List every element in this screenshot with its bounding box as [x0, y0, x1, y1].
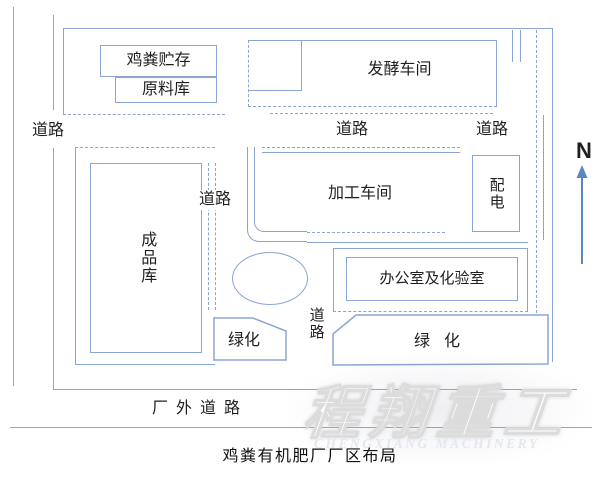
- outside-road-label: 厂外道路: [134, 398, 258, 420]
- north-label: N: [570, 138, 598, 164]
- road-label-middle-left: 道路: [193, 190, 237, 210]
- mid-road-line-b: [215, 163, 216, 310]
- power-distribution-label: 配电: [481, 168, 511, 220]
- right-road-inner-line-b: [543, 115, 544, 240]
- road-line-under-fermentation: [270, 113, 493, 114]
- north-arrow-icon: [572, 164, 592, 266]
- right-road-inner-line: [536, 30, 537, 313]
- fermentation-annex-outline: [248, 40, 302, 91]
- road-line-below-processing-a: [307, 232, 445, 233]
- green-right-label: 绿化: [380, 332, 494, 352]
- road-label-middle-top: 道路: [330, 120, 374, 140]
- road-line-below-processing-b: [307, 242, 528, 243]
- mid-road-line-a: [208, 163, 209, 310]
- manure-storage-label: 鸡粪贮存: [100, 46, 217, 76]
- fermentation-label: 发酵车间: [302, 60, 497, 80]
- diagram-title: 鸡粪有机肥厂厂区布局: [140, 446, 480, 468]
- left-road-inner-line-bottom: [53, 148, 54, 389]
- road-corner-inner: [254, 147, 307, 232]
- left-road-outer-line: [13, 7, 14, 386]
- top-right-road-stub-b: [520, 30, 521, 62]
- site-plan-diagram: 鸡粪贮存 原料库 发酵车间 道路 道路 道路 加工车间 配电 成品库 道路 道路…: [0, 0, 600, 479]
- finished-store-label: 成品库: [131, 228, 161, 288]
- top-right-road-stub-a: [512, 30, 513, 62]
- office-label: 办公室及化验室: [346, 258, 518, 300]
- raw-material-label: 原料库: [115, 78, 217, 102]
- road-label-right-top: 道路: [470, 120, 514, 140]
- road-label-center-vertical: 道路: [304, 302, 328, 346]
- green-left-label: 绿化: [221, 331, 267, 351]
- boundary-right-line: [552, 28, 553, 362]
- processing-label: 加工车间: [310, 184, 410, 204]
- roundabout-ellipse: [232, 252, 308, 305]
- left-road-inner-line-top: [53, 15, 54, 110]
- road-label-left: 道路: [26, 121, 70, 141]
